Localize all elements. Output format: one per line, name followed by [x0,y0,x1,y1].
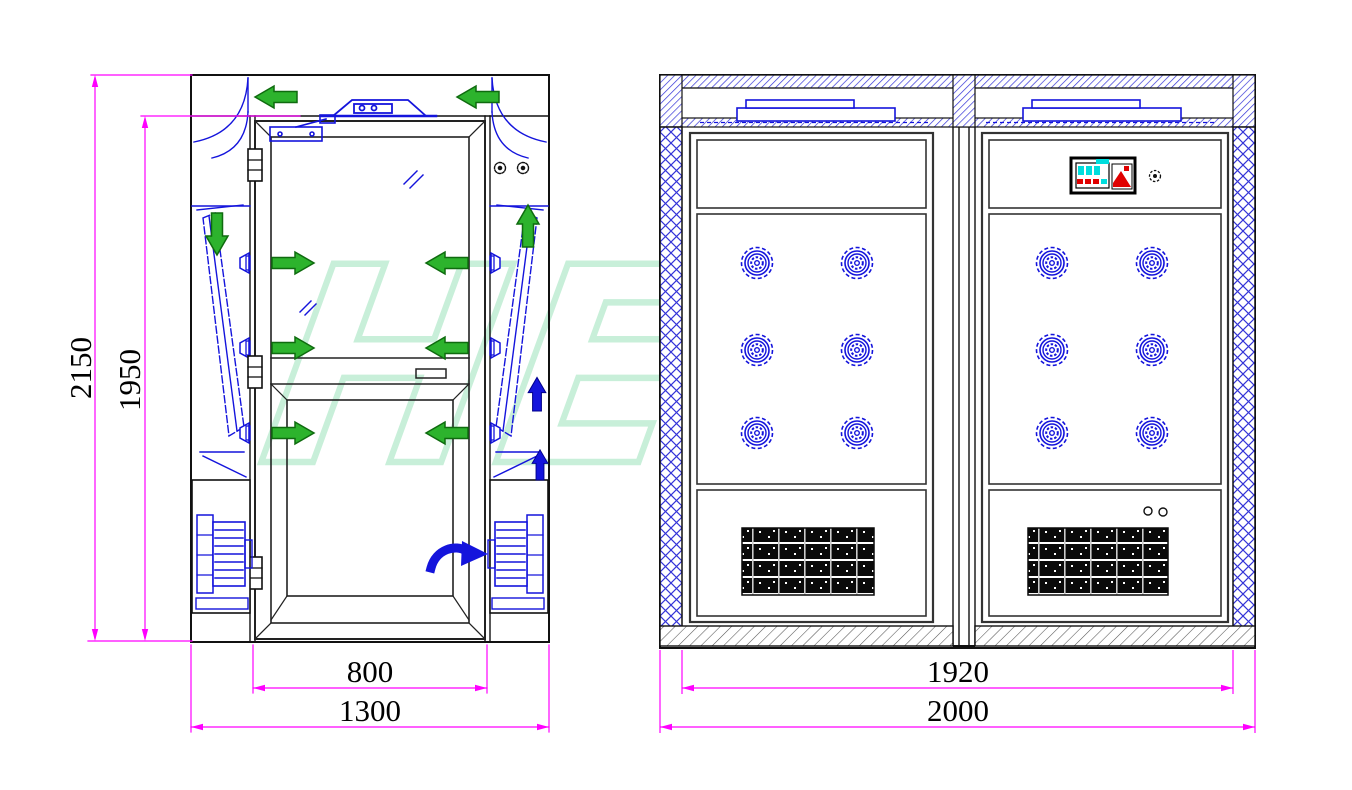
side-view-drawing: 1920 2000 [660,75,1255,733]
side-jet [240,253,250,273]
floor-hatch-right [975,626,1255,646]
floor-hatch-left [660,626,953,646]
blower-fan-left [192,480,252,613]
wall-right [1233,127,1255,630]
interlock-indicator [322,100,436,116]
drawing-sheet: HEFIL [0,0,1352,790]
side-jet [240,338,250,358]
blower-fan-right [488,480,548,613]
control-panel[interactable] [1071,158,1135,193]
dim-overall-height: 2150 [63,337,98,399]
dim-inner-width: 1920 [927,654,989,689]
interlock-buttons [495,163,529,174]
dim-door-width: 800 [347,654,394,689]
dim-overall-width: 1300 [339,693,401,728]
wall-left [660,127,682,630]
dim-side-overall-width: 2000 [927,693,989,728]
side-jet [240,423,250,443]
return-air-grille-left [742,528,874,595]
door-hinge [248,149,262,181]
return-air-grille-right [1028,528,1168,595]
dim-door-height: 1950 [112,349,147,411]
door-hinge [248,356,262,388]
technical-drawing-canvas: HEFIL [0,0,1352,790]
